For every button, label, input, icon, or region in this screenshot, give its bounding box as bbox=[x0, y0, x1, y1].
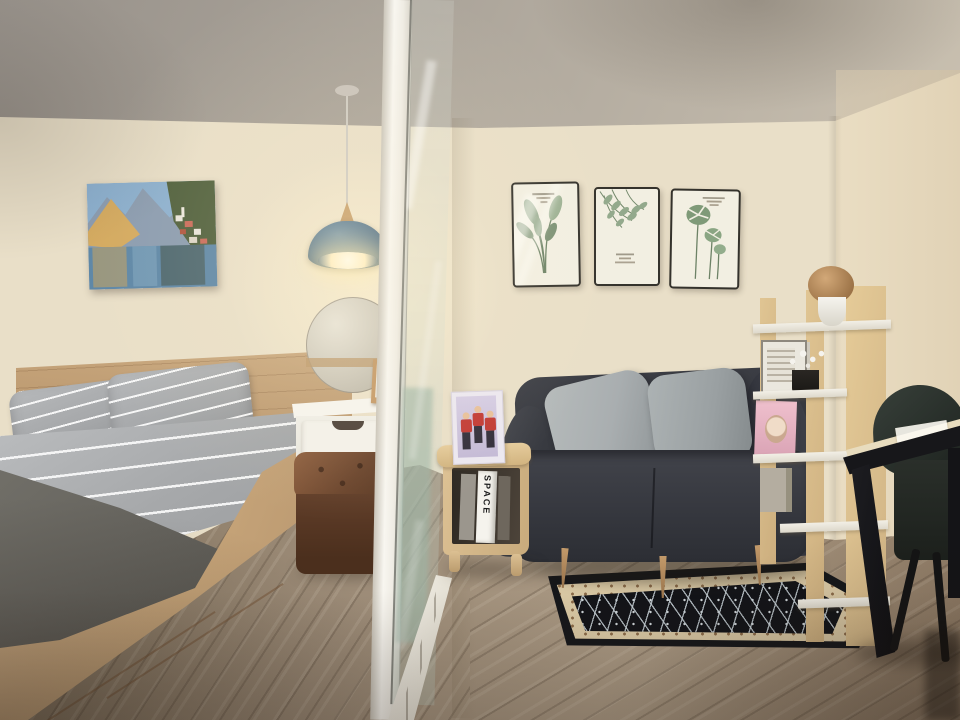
photo-figure bbox=[484, 410, 496, 447]
side-table-body: SPACE bbox=[443, 461, 529, 555]
book bbox=[497, 476, 510, 540]
botanical-print-monstera bbox=[669, 188, 741, 289]
painting-art bbox=[87, 180, 218, 289]
white-flower-pot bbox=[818, 297, 846, 326]
botanical-print-leaves bbox=[511, 181, 581, 287]
photo-figure bbox=[460, 412, 472, 449]
landscape-painting bbox=[87, 180, 218, 289]
lamp-light bbox=[318, 252, 378, 269]
photo bbox=[456, 395, 498, 457]
side-table-compartment: SPACE bbox=[452, 468, 520, 544]
book bbox=[459, 474, 476, 540]
red-outfit-photo-frame bbox=[451, 390, 506, 465]
ceiling-mount bbox=[335, 85, 359, 96]
shelf-books bbox=[760, 468, 792, 512]
magazine-cover-face bbox=[765, 415, 788, 444]
side-table-leg bbox=[449, 551, 460, 572]
print2-art bbox=[596, 189, 654, 280]
shelf-wood-board bbox=[806, 290, 824, 642]
photo-figure bbox=[472, 406, 484, 443]
pink-magazine bbox=[754, 400, 797, 460]
lamp-cord bbox=[346, 96, 348, 206]
space-book: SPACE bbox=[476, 471, 498, 544]
corner-shadow bbox=[925, 630, 960, 720]
space-book-spine-text: SPACE bbox=[481, 475, 492, 516]
drawer-handle-notch bbox=[332, 421, 364, 430]
print3-art bbox=[671, 190, 739, 283]
botanical-print-hanging bbox=[594, 187, 660, 286]
glass-reflection bbox=[402, 60, 437, 210]
desk-leg-right bbox=[948, 448, 960, 598]
room-photo: SPACE bbox=[0, 0, 960, 720]
side-table-leg bbox=[511, 554, 522, 576]
